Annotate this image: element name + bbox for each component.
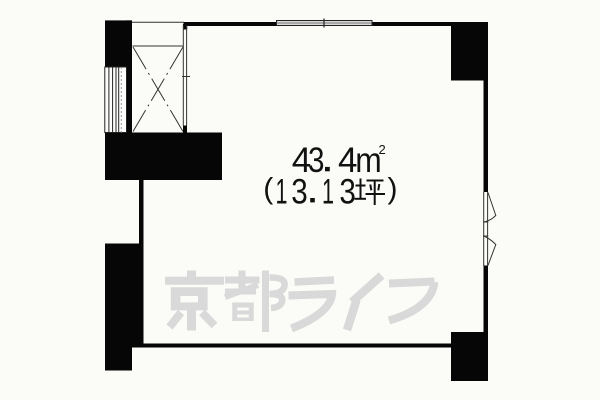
svg-text:1: 1 <box>322 173 334 212</box>
svg-text:3: 3 <box>339 173 356 212</box>
svg-text:2: 2 <box>379 142 386 157</box>
svg-text:3: 3 <box>291 173 308 212</box>
svg-text:): ) <box>388 173 398 206</box>
svg-text:(: ( <box>263 173 273 206</box>
svg-text:1: 1 <box>276 173 288 212</box>
